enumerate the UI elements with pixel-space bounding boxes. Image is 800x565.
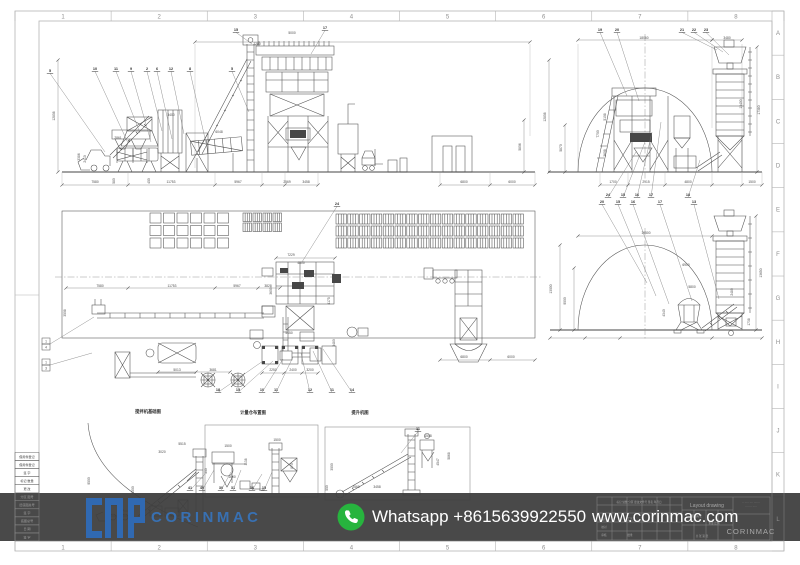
dimension-label: 2915 — [642, 180, 650, 184]
dimension-label: 5515 — [178, 442, 186, 446]
storage-block — [204, 226, 215, 236]
end-elevation-view — [548, 34, 762, 184]
grid-row-label: E — [776, 208, 780, 214]
callout-leader — [157, 71, 172, 139]
truck-plan — [424, 268, 457, 283]
callout-number: 15 — [236, 388, 240, 392]
dimension-label: 5800 — [688, 285, 696, 289]
foundation-frames — [262, 346, 336, 364]
grid-row-label: I — [777, 384, 779, 390]
grid-col-label: 5 — [446, 546, 450, 552]
dimension-label: 3020 — [158, 450, 166, 454]
callout-number: 16 — [631, 200, 635, 204]
dimension-label: 5967 — [233, 284, 241, 288]
callout-number: 11 — [330, 388, 334, 392]
dimension-label: 5450 — [285, 331, 293, 335]
dimension-label: 3600 — [269, 287, 273, 295]
callout-number: 10 — [93, 67, 97, 71]
dimension-label: 550 — [325, 485, 329, 491]
dimension-label: 3386 — [77, 153, 81, 161]
storage-block — [218, 213, 229, 223]
callout-number: 24 — [335, 202, 340, 206]
mixer-vessel — [674, 299, 704, 334]
callout-number: 21 — [680, 28, 684, 32]
grid-row-label: K — [776, 473, 780, 479]
callout-number: 18 — [686, 193, 690, 197]
dimension-label: 3480 — [332, 339, 336, 347]
dimension-label: 11753 — [168, 284, 177, 288]
plan-view — [55, 211, 542, 387]
dimension-label: 7580 — [96, 284, 104, 288]
dimension-label: 7580 — [91, 180, 99, 184]
callout-leader — [688, 160, 700, 197]
storage-block — [218, 238, 229, 248]
callout-number: 19 — [598, 28, 602, 32]
callout-leader — [694, 204, 719, 299]
bag-filter — [158, 110, 182, 172]
callout-leader — [190, 71, 206, 143]
dimension-label: 3400 — [167, 113, 175, 117]
storage-block — [164, 238, 175, 248]
dimension-label: 5967 — [234, 180, 242, 184]
dimension-label: 7229 — [287, 253, 295, 257]
callout-leader — [313, 351, 332, 392]
grid-row-label: D — [776, 164, 781, 170]
dimension-label: 6000 — [508, 180, 516, 184]
callout-number: 16 — [635, 193, 639, 197]
callout-leader — [221, 472, 231, 490]
callout-number: 9 — [130, 67, 132, 71]
callout-leader — [682, 32, 717, 50]
callout-number: 2 — [146, 67, 148, 71]
callout-number: 17 — [658, 200, 662, 204]
grid-row-label: B — [776, 75, 780, 81]
dimension-label: 5806 — [518, 143, 522, 151]
callout-leader — [623, 142, 645, 197]
callout-leader — [302, 206, 337, 262]
dimension-label: 13000 — [549, 284, 553, 293]
view-caption: 提升机图 — [351, 409, 369, 416]
mixing-tower — [256, 41, 334, 172]
dimension-label: 4800 — [684, 180, 692, 184]
callout-leader — [660, 204, 692, 301]
callout-leader — [618, 204, 656, 296]
dimension-label: 1500 — [748, 180, 756, 184]
dimension-label: 870 — [290, 463, 294, 469]
storage-block — [177, 238, 188, 248]
grid-col-label: 7 — [638, 15, 642, 21]
dimension-label: 6900 — [682, 263, 690, 267]
grid-col-label: 1 — [61, 546, 65, 552]
dimension-label: 6800 — [460, 180, 468, 184]
dimension-label: 2250 — [269, 368, 277, 372]
end-elevation-view-2 — [550, 210, 762, 340]
grid-row-label: G — [776, 296, 781, 302]
dimension-label: 1500 — [273, 438, 281, 442]
dimension-label: 5108 — [603, 113, 607, 121]
sheet-frame: 1122334455667788ABCDEFGHIJK — [15, 11, 784, 552]
grid-col-label: 6 — [542, 15, 546, 21]
dimension-label: 5013 — [173, 368, 181, 372]
storage-block — [191, 213, 202, 223]
grid-col-label: 3 — [254, 15, 258, 21]
dimension-label: 5870 — [559, 144, 563, 152]
callout-number: 5 — [49, 69, 51, 73]
dryer-drum — [117, 148, 158, 172]
grid-row-label: A — [776, 31, 780, 37]
cold-feed-bins — [112, 130, 150, 163]
dimension-label: 13650 — [759, 268, 763, 277]
dimension-label: 7700 — [596, 130, 600, 138]
vibrating-screen — [190, 137, 242, 155]
storage-block — [164, 213, 175, 223]
dimension-label: 4547 — [436, 458, 440, 466]
dimension-label: 4175 — [327, 297, 331, 305]
dimension-label: 2400 — [289, 368, 297, 372]
dimension-label: 5868 — [447, 452, 451, 460]
grid-col-label: 2 — [157, 546, 161, 552]
callout-leader — [651, 122, 661, 197]
callout-number: 20 — [615, 28, 619, 32]
tower-plan — [250, 262, 368, 349]
silo-2 — [713, 210, 752, 336]
dimension-label: 9000 — [563, 297, 567, 305]
dimension-label: 1500 — [224, 444, 232, 448]
storage-block — [191, 238, 202, 248]
section-leader — [50, 317, 94, 344]
forklift — [362, 149, 383, 170]
grid-col-label: 3 — [254, 546, 258, 552]
grid-col-label: 4 — [350, 546, 354, 552]
grid-col-label: 1 — [61, 15, 65, 21]
section-mark-number: 3 — [45, 367, 47, 371]
dimension-label: 6800 — [460, 355, 468, 359]
dimension-label: 500 — [204, 468, 208, 474]
dimension-label: 2480 — [730, 288, 734, 296]
dimension-label: 13400 — [739, 99, 743, 108]
callout-number: 13 — [692, 200, 696, 204]
callout-number: 11 — [274, 388, 278, 392]
dimension-label: 12808 — [52, 111, 56, 120]
callout-leader — [236, 32, 252, 44]
grid-row-label: C — [776, 119, 781, 125]
dimension-label: 3681 — [209, 368, 217, 372]
section-leader — [50, 353, 92, 365]
agitator-footprints — [130, 373, 245, 387]
building-plan — [450, 270, 487, 362]
grid-row-label: J — [777, 429, 780, 435]
dimension-label: 3480 — [723, 36, 731, 40]
callout-number: 17 — [323, 26, 327, 30]
storage-block — [177, 226, 188, 236]
callout-leader — [131, 71, 151, 142]
callout-leader — [264, 472, 272, 490]
dimension-label: 3200 — [306, 368, 314, 372]
callout-number: 15 — [616, 200, 620, 204]
storage-block — [204, 213, 215, 223]
silo — [713, 40, 752, 172]
grid-col-label: 4 — [350, 15, 354, 21]
dimension-label: 1738 — [747, 318, 751, 326]
tower-structure — [612, 88, 668, 172]
callout-leader — [602, 204, 647, 283]
contact-banner — [0, 493, 800, 541]
control-building — [432, 136, 472, 172]
callout-number: 41 — [188, 486, 192, 490]
callout-number: 6 — [156, 67, 158, 71]
grid-row-label: F — [776, 252, 780, 258]
storage-block — [191, 226, 202, 236]
dimension-label: 1508 — [424, 434, 432, 438]
grid-row-label: H — [776, 340, 780, 346]
view-caption: 计量仓布置图 — [240, 409, 266, 416]
storage-block — [218, 226, 229, 236]
section-mark-number: 4 — [45, 346, 47, 350]
callout-leader — [50, 73, 105, 152]
dimension-label: 2569 — [283, 180, 291, 184]
dimension-label: 6048 — [215, 130, 223, 134]
dimension-label: 2410 — [83, 155, 87, 163]
callout-number: 14 — [350, 388, 355, 392]
storage-block — [204, 238, 215, 248]
dimension-label: 9500 — [87, 477, 91, 485]
callout-leader — [276, 357, 293, 392]
callout-number: 8 — [189, 67, 191, 71]
dimension-label: 1600 — [228, 475, 236, 479]
callout-leader — [694, 32, 723, 52]
storage-block — [177, 213, 188, 223]
callout-number: 12 — [169, 67, 173, 71]
callout-number: 20 — [600, 200, 604, 204]
callout-number: 5 — [231, 67, 233, 71]
storage-block — [150, 226, 161, 236]
storage-block — [164, 226, 175, 236]
section-mark-number: 1 — [45, 361, 47, 365]
callout-leader — [600, 32, 627, 96]
dimension-label: 3458 — [302, 180, 310, 184]
dimension-label: 2280 — [253, 42, 261, 46]
grid-col-label: 6 — [542, 546, 546, 552]
storage-block — [150, 238, 161, 248]
grid-col-label: 8 — [734, 15, 738, 21]
callout-number: 22 — [692, 28, 696, 32]
dimension-label: 4800 — [297, 261, 305, 265]
grid-col-label: 5 — [446, 15, 450, 21]
dimension-label: 1138 — [244, 458, 248, 465]
view-caption: 搅拌机基础图 — [135, 408, 161, 415]
callout-leader — [401, 431, 418, 453]
front-elevation-view — [62, 35, 535, 184]
dimension-label: 3458 — [373, 485, 381, 489]
dimension-label: 6000 — [507, 355, 515, 359]
dimension-label: 2569 — [352, 485, 360, 489]
grid-col-label: 7 — [638, 546, 642, 552]
callout-leader — [323, 349, 352, 392]
dimension-label: 580 — [112, 178, 116, 184]
callout-number: 15 — [234, 28, 238, 32]
dimension-label: 17380 — [757, 105, 761, 114]
callout-leader — [238, 361, 273, 392]
grid-col-label: 2 — [157, 15, 161, 21]
dimension-label: 11753 — [167, 180, 176, 184]
dimension-label: 3608 — [603, 149, 607, 157]
callout-number: 11 — [114, 67, 118, 71]
grid-col-label: 8 — [734, 546, 738, 552]
callout-number: 11 — [416, 427, 420, 431]
dimension-label: 3508 — [63, 309, 67, 317]
dimension-label: 12808 — [543, 112, 547, 121]
dimension-label: 3000 — [330, 463, 334, 471]
storage-block — [150, 213, 161, 223]
section-mark-number: 1 — [45, 340, 47, 344]
dimension-label: 1700 — [609, 180, 617, 184]
dimension-label: 5000 — [288, 31, 296, 35]
callout-leader — [95, 71, 128, 143]
callout-leader — [633, 204, 669, 304]
callout-number: 23 — [704, 28, 708, 32]
callout-leader — [116, 71, 140, 133]
dimension-label: 2861 — [114, 136, 122, 140]
callout-leader — [218, 361, 263, 392]
dimension-label: 450 — [147, 178, 151, 184]
callout-number: 12 — [308, 388, 312, 392]
dimension-label: 4340 — [662, 309, 666, 317]
dimension-label: 18060 — [639, 36, 648, 40]
detail-right — [325, 427, 470, 500]
